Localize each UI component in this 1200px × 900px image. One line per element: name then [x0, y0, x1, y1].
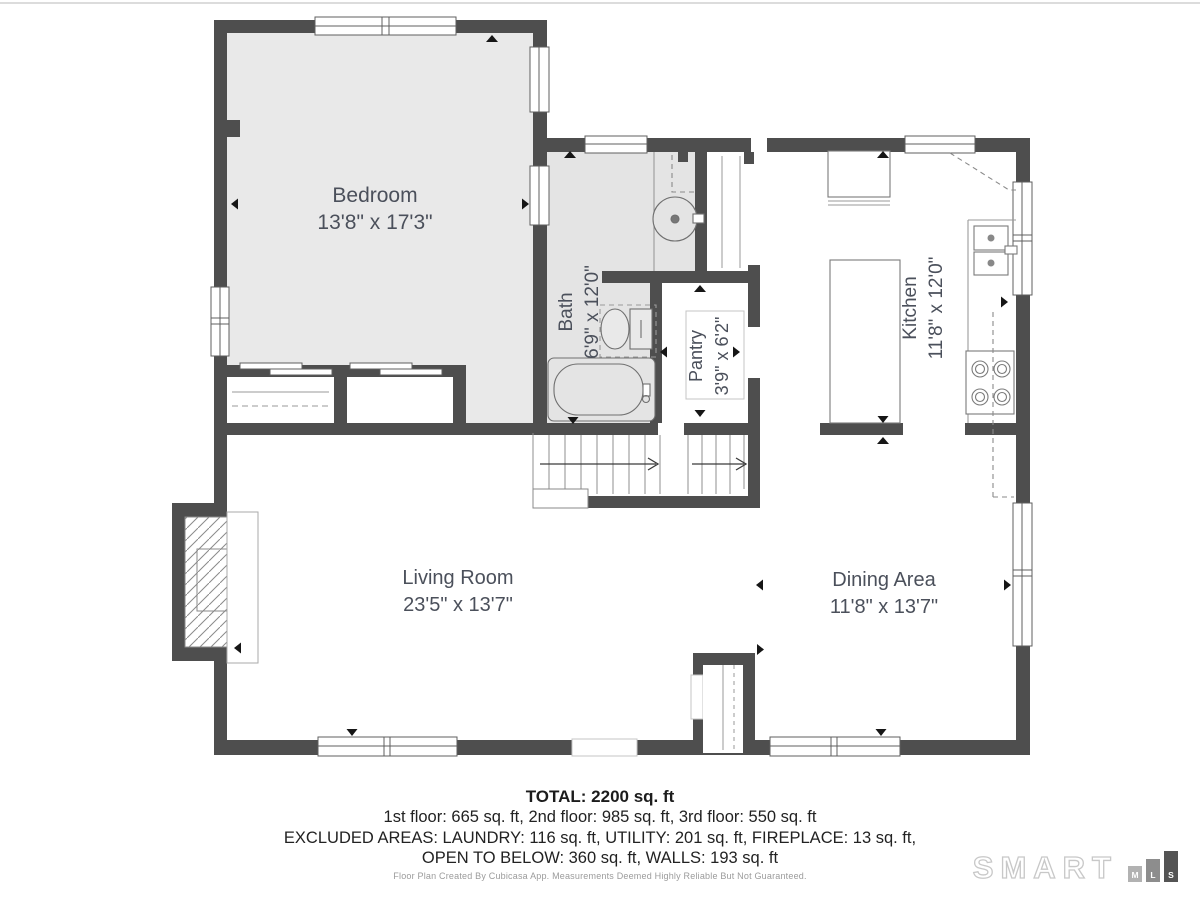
bottom-closet	[703, 665, 743, 753]
kitchen-right-window	[1013, 182, 1032, 295]
dining-right-window	[1013, 503, 1032, 646]
kitchen-sink	[974, 226, 1017, 275]
mls-bars: M L S	[1124, 851, 1178, 882]
kitchen-dims: 11'8" x 12'0"	[926, 257, 947, 360]
bedroom-top-window	[315, 17, 456, 35]
kitchen-door-opening	[751, 138, 767, 152]
closet-right	[347, 377, 453, 423]
bath-top-window	[585, 136, 647, 153]
smart-logo-text: SMART	[973, 851, 1118, 885]
bedroom-dims: 13'8" x 17'3"	[317, 211, 432, 234]
stairs-open-side	[533, 489, 588, 508]
total-area-text: TOTAL: 2200 sq. ft	[0, 786, 1200, 807]
mls-bar-l: L	[1146, 859, 1160, 882]
dining-area-label: Dining Area	[832, 569, 936, 591]
pantry-label: Pantry	[686, 330, 706, 382]
smartmls-logo: SMART M L S	[973, 851, 1178, 885]
bedroom-right-window	[530, 47, 549, 112]
fireplace	[185, 512, 258, 663]
mls-bar-s: S	[1164, 851, 1178, 882]
bedroom-label: Bedroom	[332, 184, 417, 207]
pantry-dims: 3'9" x 6'2"	[712, 317, 732, 396]
bath-left-window	[530, 166, 549, 225]
living-room-label: Living Room	[402, 567, 513, 589]
refrigerator	[828, 151, 890, 205]
living-bottom-window	[318, 737, 457, 756]
dining-bottom-window	[770, 737, 900, 756]
dining-area-dims: 11'8" x 13'7"	[830, 596, 938, 618]
top-border-line	[0, 2, 1200, 4]
floors-area-text: 1st floor: 665 sq. ft, 2nd floor: 985 sq…	[0, 807, 1200, 828]
stairs-passage-opening	[660, 423, 684, 435]
floor-plan-page: Bedroom 13'8" x 17'3" Bath 6'9" x 12'0" …	[0, 0, 1200, 900]
pantry-door-opening	[748, 327, 760, 378]
mls-bar-m: M	[1128, 866, 1142, 882]
kitchen-fixtures	[828, 151, 1017, 497]
floor-plan-svg: Bedroom 13'8" x 17'3" Bath 6'9" x 12'0" …	[0, 0, 1200, 775]
kitchen-top-window	[905, 136, 975, 153]
closet-door-opening	[691, 675, 703, 719]
bath-dims: 6'9" x 12'0"	[582, 265, 603, 359]
closet-left	[227, 377, 334, 423]
fireplace-masonry	[185, 517, 227, 647]
living-room-dims: 23'5" x 13'7"	[403, 594, 513, 616]
bath-label: Bath	[556, 292, 577, 331]
fireplace-hearth	[227, 512, 258, 663]
bathtub	[548, 358, 655, 421]
excluded-areas-line1: EXCLUDED AREAS: LAUNDRY: 116 sq. ft, UTI…	[0, 828, 1200, 849]
kitchen-label: Kitchen	[900, 276, 921, 339]
stove	[966, 351, 1014, 414]
upper-cabinets-dashed	[950, 153, 1016, 497]
bedroom-left-window	[211, 287, 229, 356]
stairs-direction-arrows	[540, 458, 746, 470]
kitchen-island	[830, 260, 900, 423]
living-room-door-opening	[572, 739, 637, 756]
hallway-doors	[722, 156, 740, 268]
